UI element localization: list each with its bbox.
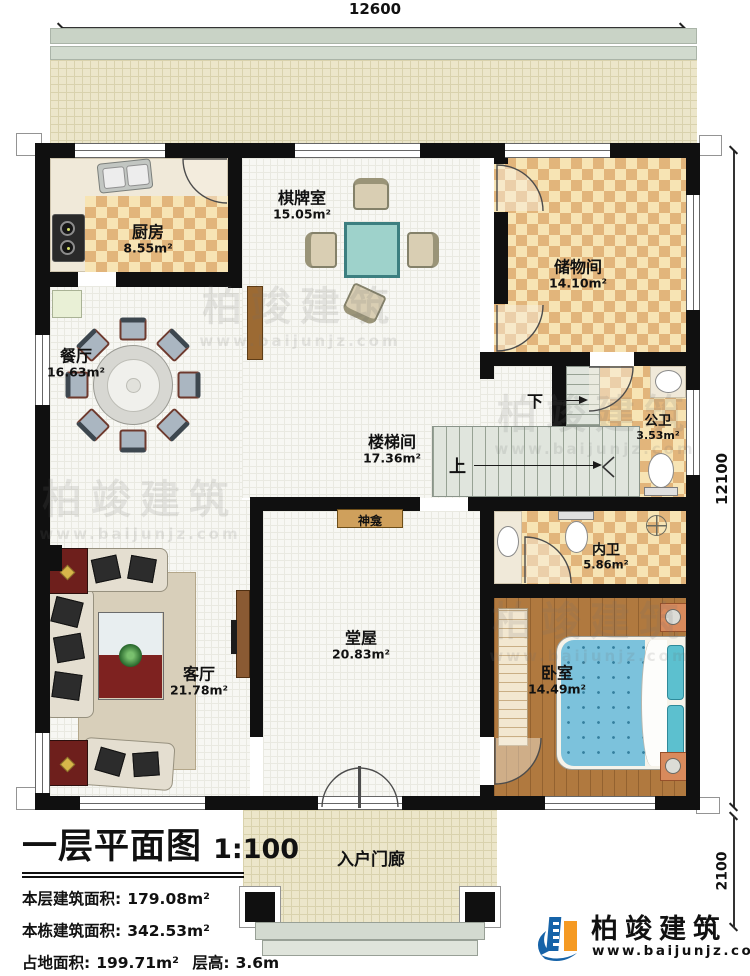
sofa-pillow <box>53 633 85 663</box>
end-table-detail <box>60 565 76 581</box>
tv-cabinet <box>236 590 250 678</box>
mahjong-table <box>344 222 400 278</box>
wall-pilaster <box>50 545 62 571</box>
door-bedroom <box>494 737 542 785</box>
bed-pillow <box>667 705 684 758</box>
window <box>80 796 205 810</box>
room-label-inner-bath: 内卫 5.86m² <box>583 542 628 571</box>
wall <box>494 212 508 304</box>
sofa-pillow <box>50 596 83 628</box>
sofa-pillow <box>91 555 121 584</box>
chair <box>407 232 439 268</box>
plan-scale: 1:100 <box>213 834 299 865</box>
window <box>545 796 655 810</box>
dimension-porch: 2100 <box>715 844 731 899</box>
watermark: 柏竣建筑 www.baijunjz.com <box>39 467 240 543</box>
wall <box>480 785 494 798</box>
sofa-pillow <box>94 747 126 777</box>
chair <box>120 430 147 453</box>
wall <box>35 272 78 287</box>
stairs-down-arrow <box>552 400 586 401</box>
door-storage-bottom <box>496 304 544 352</box>
entry-door-left <box>320 766 360 808</box>
room-label-living: 客厅 21.78m² <box>170 666 228 699</box>
shrine-label: 神龛 <box>358 514 382 528</box>
room-label-kitchen: 厨房 8.55m² <box>123 224 172 257</box>
sink-basin <box>126 164 150 187</box>
shrine-shelf: 神龛 <box>337 509 403 528</box>
brand-name: 柏竣建筑 <box>591 907 727 946</box>
stairs-up-label: 上 <box>449 452 466 477</box>
room-label-chess: 棋牌室 15.05m² <box>273 190 331 223</box>
chair <box>353 178 389 210</box>
sofa-pillow <box>51 671 82 701</box>
chair <box>305 232 337 268</box>
room-label-porch: 入户门廊 <box>337 851 405 871</box>
burner-dot <box>67 247 70 250</box>
door-inner-bath <box>524 536 572 584</box>
wall <box>480 366 494 379</box>
title-rule <box>22 872 244 874</box>
room-label-public-bath: 公卫 3.53m² <box>636 414 679 442</box>
kitchen-sink-icon <box>97 158 154 193</box>
title-block: 一层平面图 1:100 本层建筑面积:179.08m² 本栋建筑面积:342.5… <box>22 818 252 973</box>
room-label-bedroom: 卧室 14.49m² <box>528 665 586 698</box>
window <box>35 733 50 793</box>
wall <box>228 143 242 288</box>
shower-icon <box>646 515 667 536</box>
wall <box>634 352 686 366</box>
end-table <box>44 740 88 786</box>
brand-logo-icon <box>533 909 587 963</box>
porch-step <box>262 940 478 956</box>
total-area-line: 本栋建筑面积:342.53m² <box>22 919 252 941</box>
entry-door-right <box>360 766 400 808</box>
sofa-loveseat <box>80 548 168 592</box>
room-label-dining: 餐厅 16.63m² <box>47 348 105 381</box>
brand-url: www.baijunjz.com <box>592 943 750 959</box>
coffee-table <box>98 612 164 700</box>
dining-table-hub <box>126 378 141 393</box>
burner <box>60 221 75 236</box>
sofa-pillow <box>127 555 157 583</box>
wall <box>250 497 263 737</box>
wall <box>480 352 590 366</box>
sofa-loveseat <box>80 737 175 791</box>
land-area-line: 占地面积:199.71m² 层高:3.6m <box>22 951 252 973</box>
stairs-break-icon <box>600 456 616 478</box>
watermark: 柏竣建筑 www.baijunjz.com <box>489 589 690 665</box>
room-label-storage: 储物间 14.10m² <box>549 259 607 292</box>
floor-plan-sheet: 12600 <box>0 0 750 976</box>
sofa-pillow <box>132 751 160 777</box>
wall <box>468 497 686 511</box>
brand-logo: 柏竣建筑 www.baijunjz.com <box>533 905 748 967</box>
fridge-icon <box>52 290 82 318</box>
window <box>505 143 610 158</box>
porch-column <box>465 892 495 922</box>
tv-icon <box>231 620 237 654</box>
window <box>295 143 420 158</box>
eave-band <box>50 46 697 60</box>
plant-icon <box>119 644 142 667</box>
stairs-down-label: 下 <box>527 388 543 412</box>
stairs-up-arrow <box>474 465 600 466</box>
window <box>686 195 700 310</box>
sink-basin <box>102 166 126 189</box>
dimension-right: 12100 <box>713 449 731 509</box>
end-table-detail <box>60 757 76 773</box>
entry-door-leaf <box>358 766 361 808</box>
floor-area-line: 本层建筑面积:179.08m² <box>22 887 252 909</box>
dimension-line-right <box>733 150 735 808</box>
burner-dot <box>67 228 70 231</box>
toilet-tank <box>644 487 678 496</box>
sofa-long <box>44 588 94 718</box>
room-label-stairwell: 楼梯间 17.36m² <box>363 434 421 467</box>
watermark: 柏竣建筑 www.baijunjz.com <box>199 274 400 350</box>
chair <box>178 372 201 399</box>
terrace <box>50 60 697 143</box>
window <box>75 143 165 158</box>
toilet-tank <box>558 511 594 520</box>
burner <box>60 240 75 255</box>
room-label-hall: 堂屋 20.83m² <box>332 630 390 663</box>
corner-column <box>699 135 722 156</box>
nightstand <box>660 752 687 781</box>
eave-band <box>50 28 697 44</box>
door-kitchen <box>182 158 228 204</box>
door-storage-top <box>496 164 544 212</box>
stove-icon <box>52 214 85 262</box>
toilet-icon <box>648 453 674 488</box>
bath-sink-icon <box>497 526 519 557</box>
plan-title: 一层平面图 <box>22 827 202 867</box>
title-rule <box>22 876 244 878</box>
dimension-top: 12600 <box>0 0 750 18</box>
lamp-icon <box>665 758 681 774</box>
chair <box>120 318 147 341</box>
porch-step <box>255 922 485 940</box>
